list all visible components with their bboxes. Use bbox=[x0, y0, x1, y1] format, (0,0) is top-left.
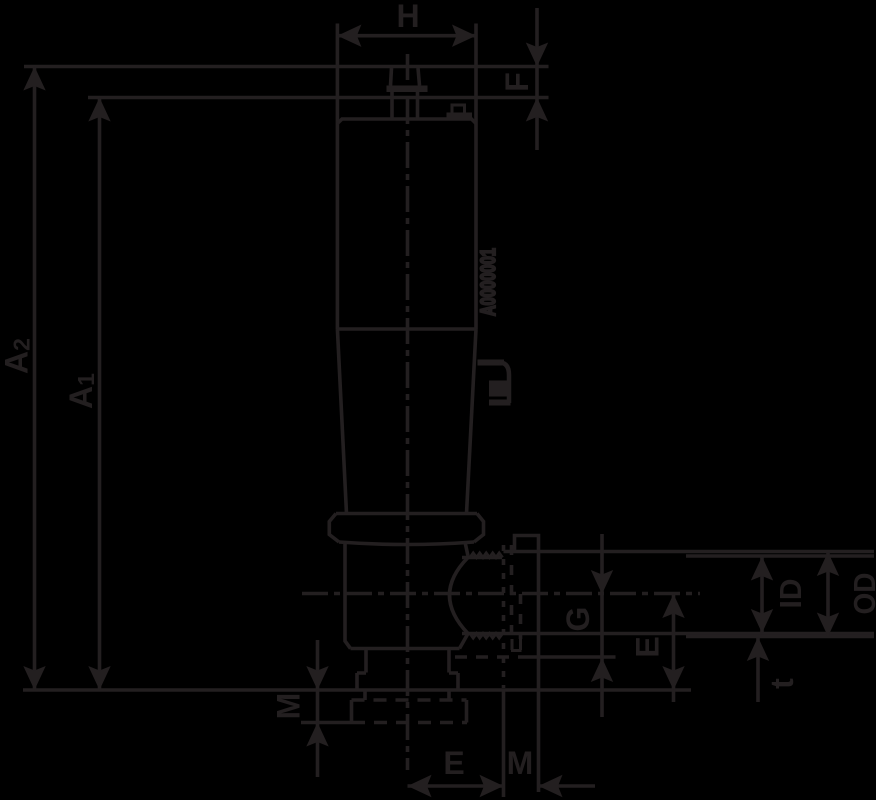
svg-text:E: E bbox=[630, 636, 666, 657]
svg-text:F: F bbox=[499, 72, 535, 92]
svg-text:E: E bbox=[443, 745, 464, 781]
svg-text:ID: ID bbox=[773, 579, 808, 609]
svg-text:A2: A2 bbox=[0, 338, 35, 374]
svg-text:A0000001: A0000001 bbox=[477, 248, 500, 316]
svg-text:OD: OD bbox=[847, 573, 876, 615]
svg-text:H: H bbox=[396, 0, 419, 34]
svg-text:M: M bbox=[507, 745, 534, 781]
svg-text:M: M bbox=[271, 693, 307, 720]
svg-text:A1: A1 bbox=[63, 373, 99, 409]
svg-text:G: G bbox=[560, 607, 596, 632]
svg-text:t: t bbox=[764, 678, 800, 689]
